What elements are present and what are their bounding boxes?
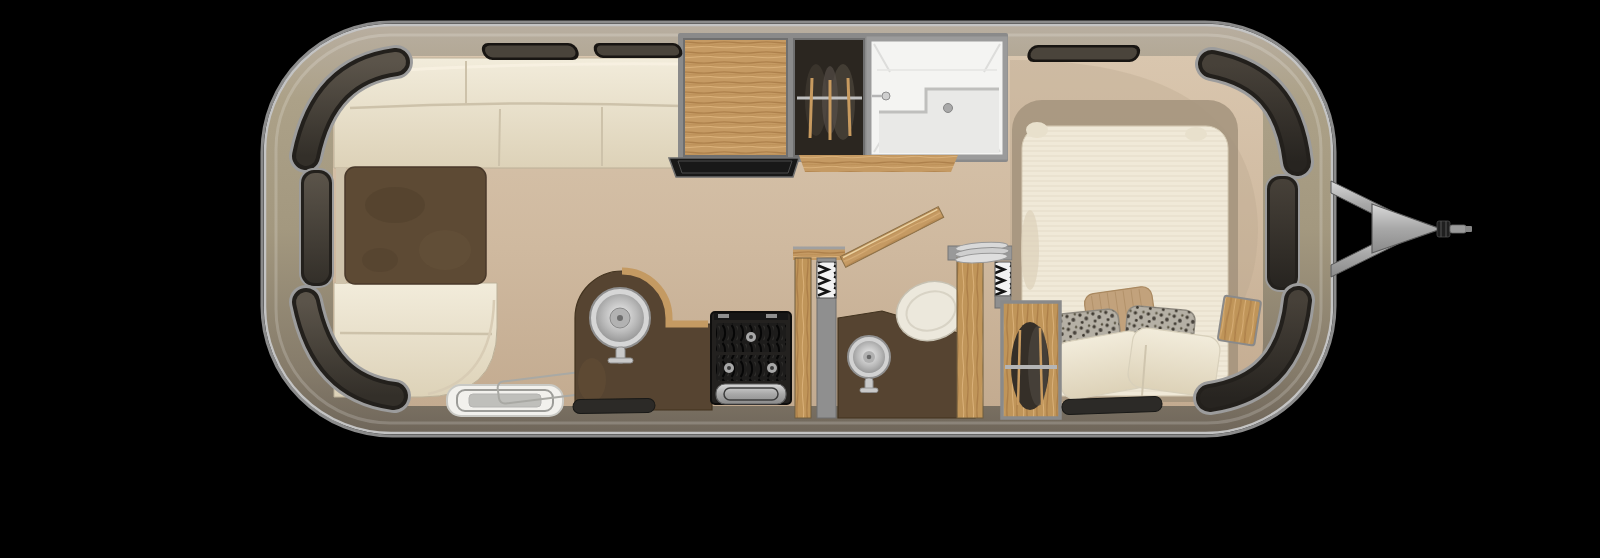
galley-wood-ledge <box>799 155 958 172</box>
bedroom-floor-mat <box>1062 396 1162 414</box>
corner-nightstand <box>1218 295 1262 345</box>
accordion-door-right <box>995 262 1011 296</box>
accordion-door-left <box>817 262 836 298</box>
shower-faucet <box>882 92 890 100</box>
floor-plan-canvas <box>0 0 1600 558</box>
galley-floor-mat <box>573 398 655 413</box>
side-window-rear <box>1265 174 1300 292</box>
slit-window-1 <box>480 43 581 60</box>
bath-wall-left <box>795 258 811 418</box>
coupler-head <box>1437 221 1450 237</box>
slit-window-2 <box>592 43 684 58</box>
coupler-tip <box>1465 226 1472 232</box>
a-frame-hitch <box>1331 181 1472 277</box>
stove-drawer <box>716 384 786 404</box>
side-window-front <box>299 168 334 288</box>
pantry <box>684 39 787 156</box>
hitch-plate <box>1372 204 1441 253</box>
bedroom <box>1002 100 1261 418</box>
shower-drain <box>944 104 953 113</box>
overhead-cabinet-row <box>669 33 1008 177</box>
bath-wall-right <box>957 258 983 418</box>
slit-window-3 <box>1025 45 1142 62</box>
coupler-shaft <box>1450 225 1466 233</box>
trailer-floor-plan <box>0 0 1600 558</box>
